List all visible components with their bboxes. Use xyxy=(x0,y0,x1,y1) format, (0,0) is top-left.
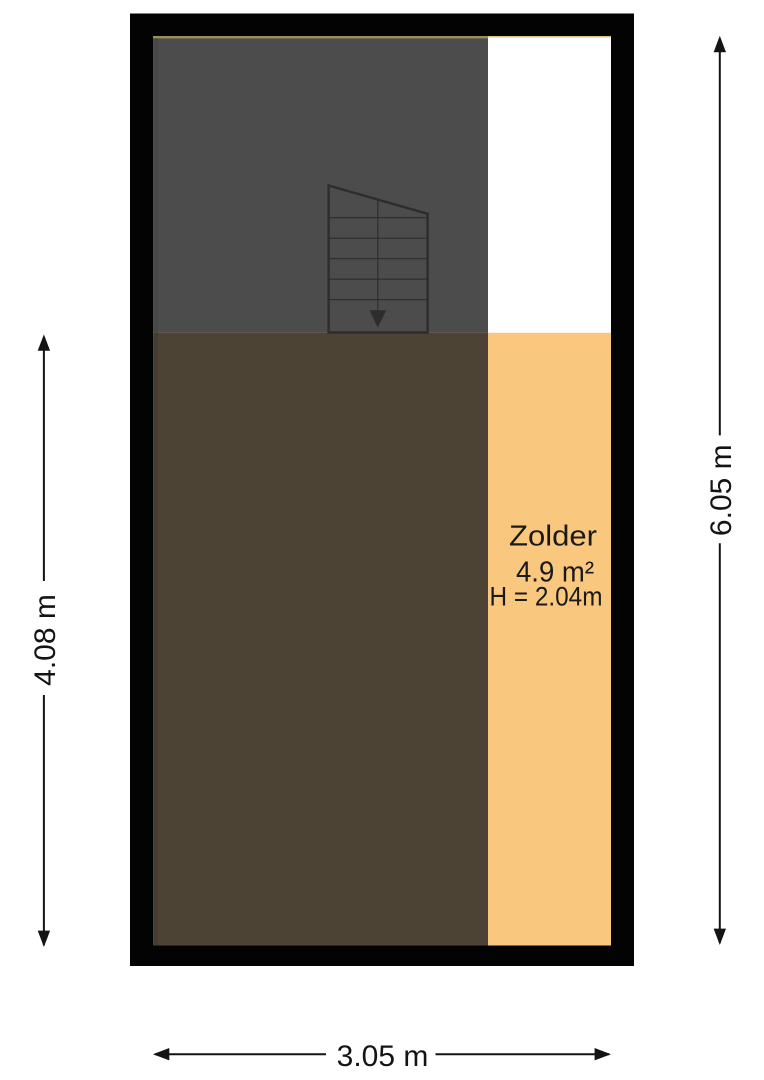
svg-text:6.05 m: 6.05 m xyxy=(705,444,738,536)
svg-text:H = 2.04m: H = 2.04m xyxy=(490,582,603,612)
svg-text:Zolder: Zolder xyxy=(509,521,598,553)
svg-text:3.05 m: 3.05 m xyxy=(337,1040,429,1073)
svg-text:4.08 m: 4.08 m xyxy=(29,594,62,686)
